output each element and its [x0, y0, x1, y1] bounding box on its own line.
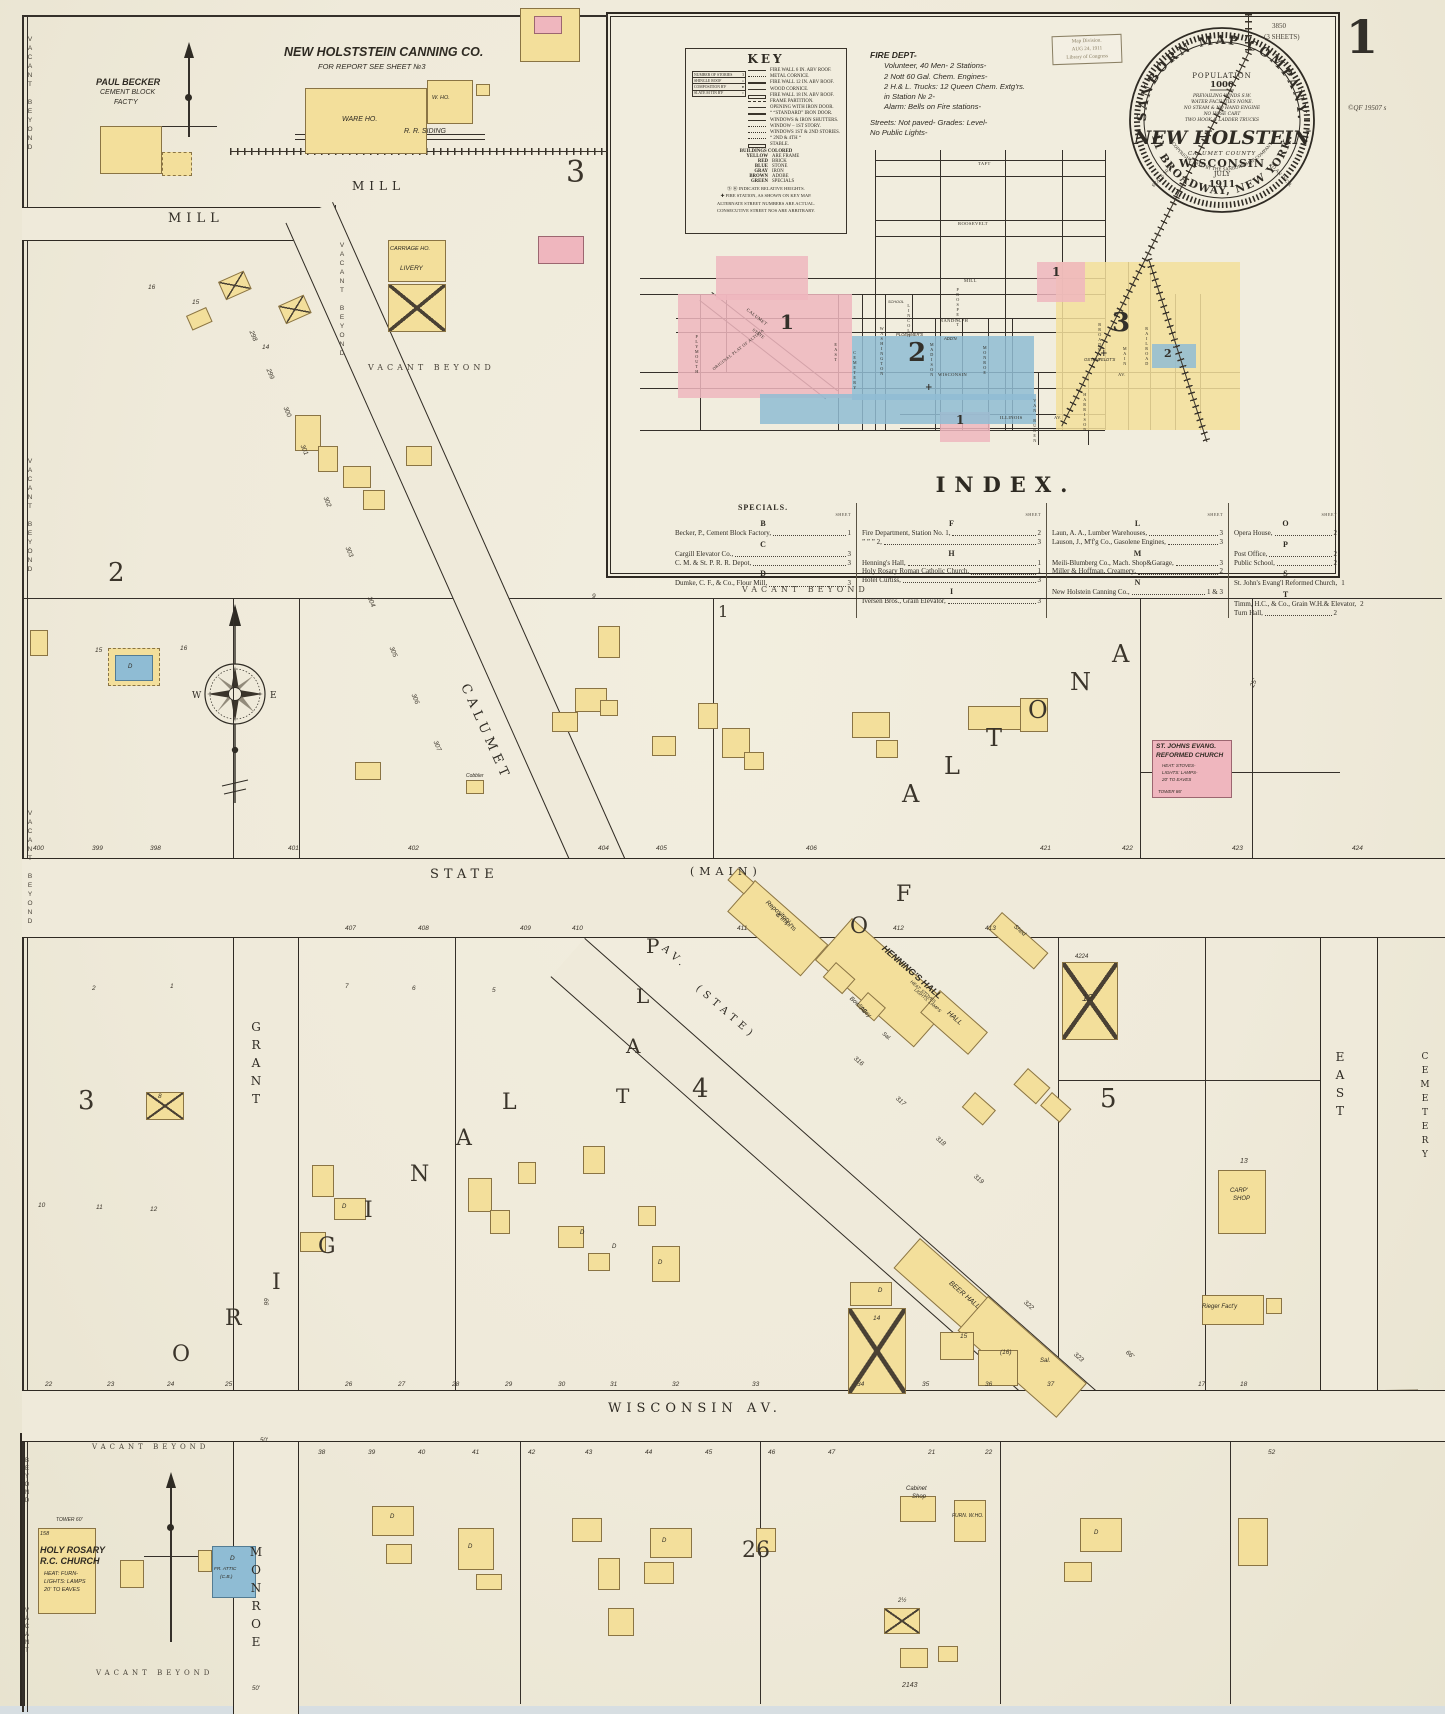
key-note: Ⓢ Ⓗ INDICATE RELATIVE HEIGHTS. — [690, 186, 842, 192]
map-label: 27 — [398, 1382, 405, 1389]
map-label: 42 — [528, 1450, 535, 1457]
flag-pole-bar — [144, 1556, 199, 1557]
compass-east: E — [270, 691, 277, 701]
map-label: T — [616, 1086, 629, 1106]
map-label: 14 — [873, 1316, 880, 1323]
map-label: 7 — [345, 984, 349, 991]
key-item: FRAME PARTITION. — [746, 99, 842, 104]
index-sheet-label: SHEET — [1052, 512, 1223, 517]
map-label: 39 — [368, 1450, 375, 1457]
building — [850, 1282, 892, 1306]
flag-pole — [170, 1484, 172, 1642]
map-label: D — [390, 1514, 394, 1520]
map-label: 31 — [610, 1382, 617, 1389]
map-label: (MAIN) — [690, 866, 762, 877]
index-group-letter: C — [675, 540, 851, 549]
map-label: 8 — [158, 1094, 162, 1101]
sanborn-map-sheet: KEY NUMBER OF STORIES3SHINGLE ROOF⌂COMPO… — [0, 0, 1445, 1714]
map-label: 44 — [645, 1450, 652, 1457]
map-label: 18 — [1240, 1382, 1247, 1389]
building — [638, 1206, 656, 1226]
building — [388, 284, 446, 332]
map-label: 2 — [908, 340, 926, 366]
map-label: 413 — [985, 926, 996, 933]
key-legend: KEY NUMBER OF STORIES3SHINGLE ROOF⌂COMPO… — [685, 48, 847, 234]
map-label: + — [1100, 350, 1108, 359]
map-label: VACANT — [24, 1608, 30, 1656]
fire-dept-line: 2 H.& L. Trucks: 12 Queen Chem. Extg'rs. — [884, 82, 1050, 92]
map-label: L — [944, 754, 960, 778]
map-label: 20' TO EAVES — [44, 1588, 80, 1594]
index-entry: Hotel Curtiss,3 — [862, 576, 1041, 585]
index-column-header — [1052, 503, 1223, 512]
key-note: ✚ FIRE STATION, AS SHOWN ON KEY MAP. — [690, 193, 842, 199]
map-label: 322 — [1022, 1300, 1034, 1312]
map-line — [640, 278, 1105, 279]
map-label: Cabinet — [906, 1486, 927, 1492]
key-color-table: BUILDINGS COLOREDYELLOWARE FRAMEREDBRICK… — [690, 149, 842, 184]
map-label: FURN. W.HO. — [952, 1514, 983, 1519]
map-label: FR. ATTIC — [214, 1568, 236, 1573]
index-column: SHEETLLaun, A. A., Lumber Warehouses,3La… — [1046, 503, 1228, 618]
building — [343, 466, 371, 488]
index-group-letter: O — [1234, 519, 1337, 528]
building — [476, 84, 490, 96]
map-label: D — [662, 1538, 666, 1544]
map-label: RAILROAD — [1144, 326, 1148, 366]
map-label: LIGHTS: LAMPS — [44, 1580, 86, 1586]
index-column-header — [862, 503, 1041, 512]
map-label: N — [410, 1164, 429, 1186]
map-label: 401 — [288, 846, 299, 853]
building — [644, 1562, 674, 1584]
building — [978, 1350, 1018, 1386]
map-label: A — [902, 782, 919, 806]
building — [876, 740, 898, 758]
building — [476, 1574, 502, 1590]
map-label: 17 — [1198, 1382, 1205, 1389]
building — [490, 1210, 510, 1234]
building — [466, 780, 484, 794]
map-label: LINCOLN — [906, 303, 910, 338]
map-label: 45 — [705, 1450, 712, 1457]
map-label: WISCONSIN AV. — [608, 1402, 782, 1415]
building — [940, 1332, 974, 1360]
map-label: I — [272, 1272, 281, 1294]
map-label: 21 — [928, 1450, 935, 1457]
flag-pole-tip — [184, 42, 194, 58]
map-line — [875, 236, 1105, 237]
index-column-header — [1234, 503, 1337, 512]
map-label: N — [1070, 670, 1091, 694]
map-label: HEAT: FURN- — [44, 1572, 78, 1578]
building — [198, 1550, 212, 1572]
map-label: W. HO. — [432, 96, 450, 102]
building — [598, 626, 620, 658]
building — [583, 1146, 605, 1174]
index-group-letter: I — [862, 587, 1041, 596]
map-label: 22 — [985, 1450, 992, 1457]
map-line — [233, 598, 234, 858]
map-label: D — [230, 1556, 235, 1563]
map-label: 2143 — [902, 1682, 918, 1689]
building — [962, 1092, 996, 1126]
building — [100, 126, 162, 174]
map-label: R. R. SIDING — [404, 128, 446, 135]
key-item: FIRE WALL 12 IN. ABV ROOF. — [746, 80, 842, 85]
index-group-letter: B — [675, 519, 851, 528]
map-label: 50' — [260, 1438, 268, 1444]
map-line — [22, 598, 1442, 599]
map-label: VAN BUREN — [1032, 398, 1036, 443]
map-label: NEW HOLSTSTEIN CANNING CO. — [284, 46, 483, 59]
key-mini-row: SLATE M TIN R'F○ — [693, 91, 745, 96]
map-label: 3 — [78, 1088, 95, 1114]
building — [468, 1178, 492, 1212]
map-line — [875, 176, 1105, 177]
map-label: ILLINOIS — [1000, 416, 1023, 421]
map-label: 5 — [1100, 1086, 1117, 1112]
map-label: P — [646, 936, 659, 956]
map-label: 52 — [1268, 1450, 1275, 1457]
building — [650, 1528, 692, 1558]
street-note-line: No Public Lights- — [870, 128, 1050, 138]
compass-rose: W E — [180, 598, 290, 813]
map-label: 412 — [893, 926, 904, 933]
map-label: Shop — [912, 1494, 926, 1500]
map-label: 423 — [1232, 846, 1243, 853]
key-notes: Ⓢ Ⓗ INDICATE RELATIVE HEIGHTS.✚ FIRE STA… — [690, 186, 842, 213]
map-line — [1140, 598, 1141, 858]
map-label: 25 — [225, 1382, 232, 1389]
map-label: LIGHTS: LAMPS- — [1162, 771, 1198, 776]
map-label: (C.B.) — [220, 1576, 233, 1581]
index-title: INDEX. — [670, 472, 1342, 497]
accession-number: ©QF 19507 s — [1348, 104, 1386, 112]
map-label: CEMETERY — [1420, 1052, 1429, 1164]
index-entry: Lauson, J., M'f'g Co., Gasolene Engines,… — [1052, 538, 1223, 547]
map-label: HARRISON — [1082, 392, 1086, 432]
map-label: R — [225, 1308, 242, 1330]
map-label: I — [364, 1200, 373, 1222]
map-label: 28 — [452, 1382, 459, 1389]
map-label: CARP' — [1230, 1188, 1248, 1194]
flag-pole-tip — [166, 1472, 176, 1488]
map-line — [875, 220, 1105, 221]
building — [386, 1544, 412, 1564]
building — [900, 1648, 928, 1668]
series-number: 3850 — [1272, 22, 1286, 30]
building — [1238, 1518, 1268, 1566]
building — [406, 446, 432, 466]
map-line — [455, 938, 456, 1390]
fire-dept-line: Alarm: Bells on Fire stations- — [884, 102, 1050, 112]
map-label: 4224 — [1075, 954, 1088, 960]
scan-edge — [0, 1706, 1445, 1714]
key-note: CONSECUTIVE STREET NOS ARE ARBITRARY. — [690, 208, 842, 213]
map-label: MILL — [168, 212, 224, 225]
index-entry: Turn Hall,2 — [1234, 609, 1337, 618]
map-label: L — [502, 1092, 517, 1114]
map-label: WASHINGTON — [879, 326, 883, 376]
street-note-line: Streets: Not paved- Grades: Level- — [870, 118, 1050, 128]
building — [518, 1162, 536, 1184]
district-patch — [716, 256, 808, 300]
index-sheet-label: SHEET — [862, 512, 1041, 517]
map-label: O — [172, 1344, 190, 1366]
building — [652, 736, 676, 756]
map-label: 405 — [656, 846, 667, 853]
map-label: MILL — [964, 279, 977, 284]
fire-dept-line: Volunteer, 40 Men- 2 Stations- — [884, 61, 1050, 71]
map-label: EAST — [833, 342, 837, 362]
map-label: 400 — [33, 846, 44, 853]
map-label: 3 — [566, 158, 585, 188]
map-label: AV. — [659, 944, 688, 971]
building — [30, 630, 48, 656]
map-label: VACANT BEYOND — [26, 36, 33, 153]
map-label: 22 — [45, 1382, 52, 1389]
key-item: METAL CORNICE. — [746, 74, 842, 79]
map-label: 15 — [95, 648, 102, 655]
map-label: 4 — [692, 1076, 709, 1102]
building — [278, 295, 312, 325]
map-label: T — [986, 726, 1002, 750]
map-label: O — [850, 916, 868, 938]
building — [572, 1518, 602, 1542]
map-label: TOWER 60' — [56, 1518, 82, 1523]
map-line — [1230, 1442, 1231, 1704]
map-label: 319 — [972, 1174, 984, 1186]
map-label: 2½ — [898, 1598, 906, 1604]
map-label: 1 — [718, 604, 728, 620]
index-entry: Henning's Hall,1 — [862, 559, 1041, 568]
map-label: 37 — [1047, 1382, 1054, 1389]
sheet-number-badge: 1 — [1346, 10, 1378, 64]
map-label: VACANT BEYOND — [338, 242, 345, 359]
map-label: MILL — [352, 180, 405, 192]
building — [598, 1558, 620, 1590]
map-label: 2 — [108, 560, 125, 586]
map-label: 12 — [150, 1207, 157, 1214]
map-label: F — [896, 884, 911, 906]
map-label: Sal. — [1040, 1358, 1050, 1364]
map-label: 24 — [167, 1382, 174, 1389]
map-label: VACANT BEYOND — [26, 458, 33, 575]
map-label: 317 — [894, 1096, 906, 1108]
railroad-track — [1245, 14, 1252, 54]
index-entry: Post Office,2 — [1234, 550, 1337, 559]
map-label: 1 — [956, 414, 964, 426]
map-label: 302 — [321, 496, 331, 509]
map-label: 16 — [148, 285, 155, 292]
seal-population-label: POPULATION — [1192, 72, 1252, 80]
district-patch — [678, 294, 852, 398]
map-line — [299, 598, 300, 858]
map-label: A — [456, 1128, 472, 1150]
building — [355, 762, 381, 780]
map-label: 11 — [96, 1205, 103, 1212]
map-label: 399 — [92, 846, 103, 853]
map-label: D — [468, 1544, 472, 1550]
seal-month: JULY — [1213, 170, 1231, 178]
building — [334, 1198, 366, 1220]
building — [1064, 1562, 1092, 1582]
index-group-letter: N — [1052, 578, 1223, 587]
map-label: 29 — [505, 1382, 512, 1389]
building — [1202, 1295, 1264, 1325]
map-label: 298 — [247, 330, 257, 343]
map-label: 26 — [742, 1540, 770, 1562]
index-entry: Miller & Hoffman, Creamery,2 — [1052, 567, 1223, 576]
index-group-letter: D — [675, 569, 851, 578]
map-label: CEMETERY — [852, 350, 856, 390]
map-label: D — [128, 664, 132, 670]
building — [312, 1165, 334, 1197]
map-label: PLYMOUTH — [694, 334, 698, 374]
map-label: 13 — [1240, 1158, 1248, 1165]
map-label: 5 — [492, 988, 496, 995]
map-label: D — [612, 1244, 616, 1250]
district-patch — [1037, 262, 1085, 302]
key-item: WOOD CORNICE. — [746, 87, 842, 92]
map-label: 300 — [281, 406, 291, 419]
map-label: MONROE — [250, 1545, 262, 1653]
map-label: 422 — [1122, 846, 1133, 853]
street-band — [22, 1390, 1445, 1442]
map-label: ST. JOHNS EVANG. — [1156, 744, 1216, 751]
map-label: 66 — [262, 1298, 269, 1305]
map-label: 43 — [585, 1450, 592, 1457]
map-label: 36 — [985, 1382, 992, 1389]
map-line — [1058, 1080, 1320, 1081]
key-item: WINDOW – 1ST STORY. — [746, 124, 842, 129]
map-label: STATE — [430, 868, 499, 881]
index-entry: Holy Rosary Roman Catholic Church,1 — [862, 567, 1041, 576]
index-entry: Becker, P., Cement Block Factory,1 — [675, 529, 851, 538]
map-label: O — [1028, 698, 1048, 722]
map-label: 305 — [387, 646, 397, 659]
map-label: FOR REPORT SEE SHEET №3 — [318, 63, 426, 71]
building — [1266, 1298, 1282, 1314]
flag-pole-bar — [162, 126, 217, 127]
map-label: VACANT BEYOND — [26, 810, 33, 927]
index-group-letter: H — [862, 549, 1041, 558]
map-label: MONROE — [982, 345, 986, 375]
map-label: L — [636, 986, 649, 1006]
map-label: CEMENT BLOCK — [100, 89, 155, 96]
map-label: WISCONSIN — [938, 373, 967, 378]
building — [938, 1646, 958, 1662]
map-label: CARRIAGE HO. — [390, 247, 430, 253]
sanborn-seal: SANBORN MAP COMPANY. 11 BROADWAY, NEW YO… — [1126, 24, 1318, 216]
index-column: SHEETFFire Department, Station No. 1,2” … — [856, 503, 1046, 618]
map-label: 15 — [192, 300, 199, 307]
building — [186, 307, 213, 331]
map-label: 316 — [852, 1056, 864, 1068]
building — [588, 1253, 610, 1271]
index-group-letter: L — [1052, 519, 1223, 528]
map-label: MAIN — [1122, 346, 1126, 366]
map-label: 404 — [598, 846, 609, 853]
map-label: 50' — [252, 1686, 260, 1692]
index-entry: St. John's Evang'l Reformed Church,1 — [1234, 579, 1337, 588]
index-column: SHEETOOpera House,2PPost Office,2Public … — [1228, 503, 1342, 618]
index-sheet-label: SHEET — [675, 512, 851, 517]
map-label: 424 — [1352, 846, 1363, 853]
seal-year: 1911 — [1209, 179, 1235, 190]
map-label: 1 — [170, 984, 174, 991]
map-label: TAFT — [978, 162, 991, 167]
building — [120, 1560, 144, 1588]
index-entry: Public School,2 — [1234, 559, 1337, 568]
flag-pole-ball — [185, 94, 192, 101]
building — [698, 703, 718, 729]
index-entry: Opera House,2 — [1234, 529, 1337, 538]
fire-dept-line: in Station № 2- — [884, 92, 1050, 102]
map-label: 323 — [1072, 1352, 1084, 1364]
building — [954, 1500, 986, 1542]
map-label: TOWER 86' — [1158, 790, 1182, 795]
key-item: “ 2ND & 4TH “ — [746, 136, 842, 141]
building — [600, 700, 618, 716]
map-label: ROOSEVELT — [958, 222, 988, 227]
map-label: G — [318, 1236, 336, 1258]
map-label: Sal. — [880, 1032, 891, 1042]
map-label: 318 — [934, 1136, 946, 1148]
map-label: 408 — [418, 926, 429, 933]
map-label: EAST — [1334, 1050, 1346, 1122]
index-column-header: SPECIALS. — [675, 503, 851, 512]
map-label: VACANT BEYOND — [96, 1670, 213, 1677]
building — [115, 655, 153, 681]
index-entry: New Holstein Canning Co.,1 & 3 — [1052, 588, 1223, 597]
map-label: 411 — [737, 926, 747, 933]
map-line — [1058, 938, 1059, 1390]
building — [538, 236, 584, 264]
street-band — [1320, 938, 1378, 1390]
index-entry: Laun, A. A., Lumber Warehouses,3 — [1052, 529, 1223, 538]
map-label: D — [580, 1230, 584, 1236]
map-label: AV. — [1054, 416, 1062, 421]
map-label: 34 — [857, 1382, 864, 1389]
map-label: 402 — [408, 846, 419, 853]
map-label: 12 — [1082, 994, 1093, 1004]
map-label: 6 — [412, 986, 416, 993]
map-label: 40 — [418, 1450, 425, 1457]
map-label: (16) — [1000, 1350, 1012, 1357]
building — [218, 271, 252, 301]
index-group-letter: P — [1234, 540, 1337, 549]
index-group-letter: S — [1234, 569, 1337, 578]
map-label: A — [1112, 642, 1129, 666]
map-label: 16 — [180, 646, 187, 653]
building — [162, 152, 192, 176]
map-label: 14 — [262, 345, 269, 352]
building — [363, 490, 385, 510]
key-item: WINDOWS 1ST & 2ND STORIES. — [746, 130, 842, 135]
building — [744, 752, 764, 770]
map-label: 421 — [1040, 846, 1051, 853]
key-color-row: GREENSPECIALS — [690, 179, 842, 184]
key-item: “ “STANDARD” IRON DOOR. — [746, 111, 842, 116]
map-label: 1 — [780, 312, 794, 332]
map-line — [912, 294, 913, 332]
map-label: 35 — [922, 1382, 929, 1389]
map-label: D — [658, 1260, 662, 1266]
key-title: KEY — [690, 52, 842, 66]
library-of-congress-stamp: Map Division. AUG 24, 1911 Library of Co… — [1052, 34, 1123, 66]
